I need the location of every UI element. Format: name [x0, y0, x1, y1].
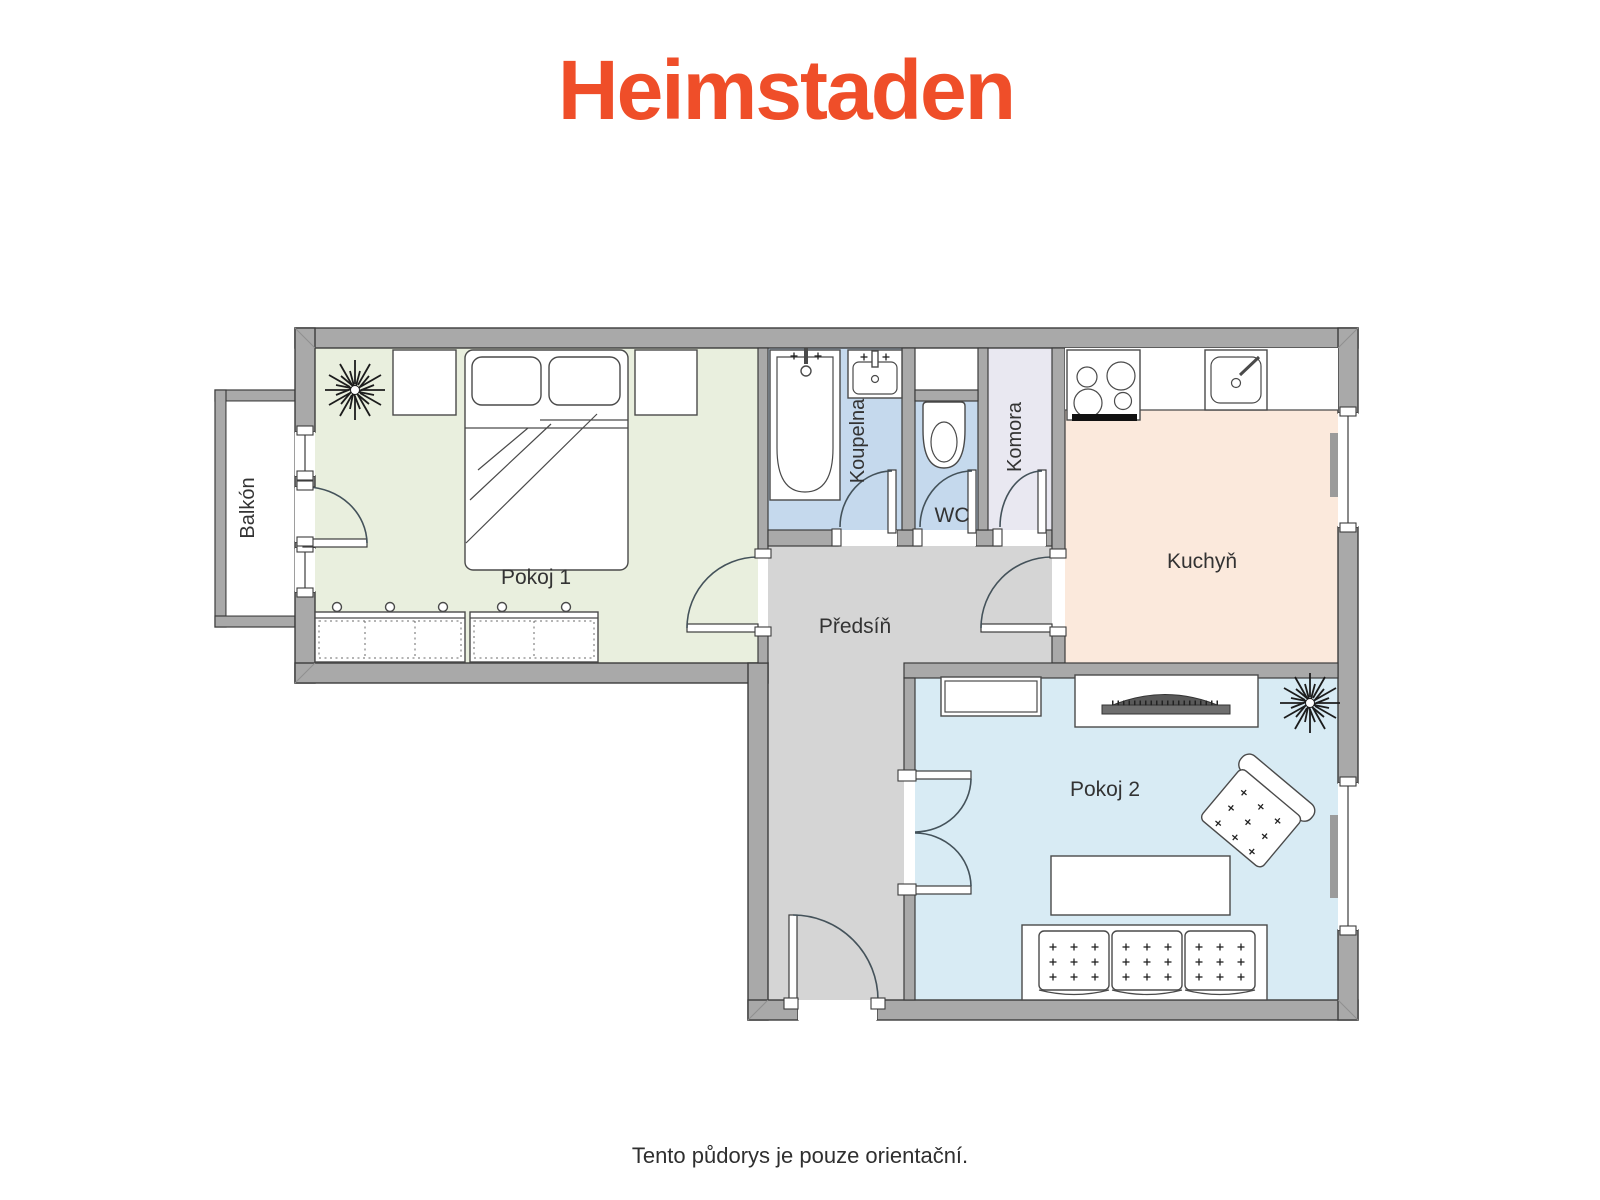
tv-stand [1075, 675, 1258, 727]
kuchyn-furniture [1065, 348, 1338, 421]
nightstand-right [635, 350, 697, 415]
coffee-table [1051, 856, 1230, 915]
kuchyn-window [1338, 407, 1358, 532]
pokoj2-radiator [1330, 815, 1338, 898]
wall-hall-left [748, 663, 768, 1020]
wall-wc-komora [978, 348, 988, 530]
wardrobe-1 [315, 603, 465, 663]
wall-kuchyn-west-upper [1052, 348, 1065, 557]
stove [1067, 350, 1140, 421]
label-kuchyn: Kuchyň [1167, 550, 1237, 573]
wall-right-3 [1338, 930, 1358, 1020]
label-komora: Komora [1004, 401, 1026, 472]
balcony-wall-top [215, 390, 295, 401]
pillow-left [472, 357, 541, 405]
label-pokoj1: Pokoj 1 [501, 566, 571, 589]
wall-bath-bottom-4 [1046, 530, 1052, 546]
floorplan-canvas: Heimstaden [0, 0, 1600, 1200]
sofa [1022, 925, 1267, 1000]
pokoj2-window [1338, 777, 1358, 935]
wall-bottom-right [877, 1000, 1358, 1020]
wall-pokoj1-bath [758, 348, 768, 557]
wall-left-upper [295, 328, 315, 432]
bathroom-sink [848, 350, 902, 398]
wall-wc-shaft [915, 390, 978, 401]
balcony-wall-left [215, 390, 226, 627]
label-balkon: Balkón [237, 477, 259, 538]
wc-shaft [915, 348, 978, 390]
toilet [923, 402, 965, 468]
heimstaden-logo: Heimstaden [558, 43, 1014, 137]
balcony-window-2 [295, 543, 315, 597]
wall-pokoj2-west-upper [904, 678, 915, 780]
wall-top [295, 328, 1358, 348]
disclaimer-caption: Tento půdorys je pouze orientační. [632, 1143, 968, 1168]
wall-pokoj2-west-lower [904, 885, 915, 1000]
desk [941, 677, 1041, 716]
nightstand-left [393, 350, 456, 415]
wall-bath-bottom-1 [768, 530, 838, 546]
label-wc: WC [935, 504, 970, 527]
kitchen-sink [1205, 350, 1267, 410]
wardrobe-2 [470, 603, 598, 663]
pillow-right [549, 357, 620, 405]
wall-right-1 [1338, 328, 1358, 413]
label-koupelna: Koupelna [847, 398, 869, 483]
room-predsin-floor-upper [768, 546, 1052, 663]
wall-pokoj1-bottom [295, 663, 768, 683]
label-pokoj2: Pokoj 2 [1070, 778, 1140, 801]
wall-koupelna-wc [902, 348, 915, 530]
label-predsin: Předsíň [819, 615, 891, 638]
wall-right-2 [1338, 527, 1358, 783]
double-bed [465, 350, 628, 570]
bathtub [770, 348, 840, 500]
balcony-wall-bottom [215, 616, 295, 627]
balcony-window-1 [295, 426, 315, 480]
kuchyn-radiator [1330, 433, 1338, 497]
floorplan-page: Heimstaden [0, 0, 1600, 1200]
